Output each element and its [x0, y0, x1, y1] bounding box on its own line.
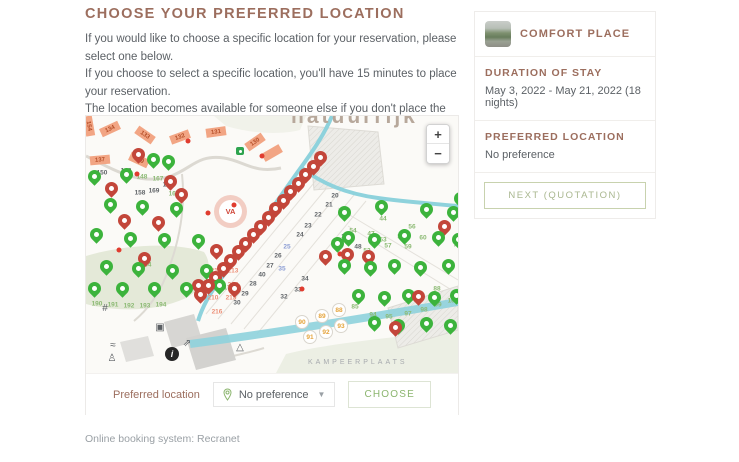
plot-label-32: 32	[280, 294, 287, 301]
green-square-marker	[236, 147, 244, 155]
intro-paragraph-line: If you choose to select a specific locat…	[85, 66, 467, 101]
plot-label-191: 191	[108, 302, 119, 309]
plot-label-98: 98	[420, 307, 427, 314]
circled-plot-90: 90	[295, 315, 309, 329]
preferred-location-value: No preference	[485, 149, 645, 161]
map-card: natuurrijk KAMPEERPLAATS VA + − 13413313…	[85, 115, 459, 415]
preferred-location-dropdown[interactable]: No preference ▼	[213, 382, 336, 407]
circled-plot-89: 89	[315, 309, 329, 323]
red-dot-marker	[206, 211, 211, 216]
plot-label-20: 20	[331, 193, 338, 200]
summary-header: COMFORT PLACE	[475, 12, 655, 56]
plot-label-59: 59	[404, 244, 411, 251]
circled-plot-92: 92	[319, 325, 333, 339]
red-dot-marker	[300, 287, 305, 292]
plot-label-22: 22	[314, 212, 321, 219]
chevron-down-icon: ▼	[318, 390, 326, 399]
pin-icon	[223, 388, 232, 401]
plot-label-56: 56	[408, 224, 415, 231]
plot-label-190: 190	[92, 301, 103, 308]
duration-title: DURATION OF STAY	[485, 67, 645, 79]
plot-label-192: 192	[124, 303, 135, 310]
preferred-location-title: PREFERRED LOCATION	[485, 131, 645, 143]
plot-label-35: 35	[278, 266, 285, 273]
plot-label-34: 34	[301, 276, 308, 283]
plot-label-29: 29	[241, 291, 248, 298]
next-button-row: NEXT (QUOTATION)	[475, 172, 655, 218]
plot-label-60: 60	[419, 235, 426, 242]
plot-label-28: 28	[249, 281, 256, 288]
red-dot-marker	[135, 172, 140, 177]
plot-label-21: 21	[325, 202, 332, 209]
paper-plane-icon: ⇗	[183, 339, 191, 349]
zoom-out-button[interactable]: −	[427, 144, 449, 163]
page-title: CHOOSE YOUR PREFERRED LOCATION	[85, 6, 467, 22]
plot-label-97: 97	[404, 311, 411, 318]
preferred-location-label: Preferred location	[113, 389, 200, 401]
red-dot-marker	[117, 248, 122, 253]
building-137: 137	[90, 155, 111, 166]
high-ropes-icon: #	[102, 304, 108, 314]
plot-label-193: 193	[140, 303, 151, 310]
duration-section: DURATION OF STAY May 3, 2022 - May 21, 2…	[475, 56, 655, 120]
plot-label-48: 48	[354, 244, 361, 251]
plot-label-167: 167	[153, 176, 164, 183]
plot-label-57: 57	[384, 243, 391, 250]
plot-label-24: 24	[296, 232, 303, 239]
map-canvas[interactable]: natuurrijk KAMPEERPLAATS VA + − 13413313…	[86, 116, 458, 373]
comfort-place-thumbnail	[485, 21, 511, 47]
waves-icon: ≈	[110, 341, 116, 351]
choose-button[interactable]: CHOOSE	[348, 381, 431, 408]
plot-label-169: 169	[149, 188, 160, 195]
plot-label-44: 44	[379, 216, 386, 223]
next-quotation-button[interactable]: NEXT (QUOTATION)	[484, 182, 646, 209]
circled-plot-91: 91	[303, 330, 317, 344]
intro-paragraph-line: If you would like to choose a specific l…	[85, 31, 467, 66]
plot-label-194: 194	[156, 302, 167, 309]
plot-label-27: 27	[266, 263, 273, 270]
plot-label-210: 210	[208, 295, 219, 302]
plot-label-40: 40	[258, 272, 265, 279]
plot-label-216: 216	[212, 309, 223, 316]
campsite-logo: VA	[214, 195, 247, 228]
red-dot-marker	[232, 203, 237, 208]
dropdown-value: No preference	[239, 389, 309, 401]
map-control-row: Preferred location No preference ▼ CHOOS…	[86, 373, 458, 415]
accommodation-title: COMFORT PLACE	[520, 28, 630, 40]
duration-value: May 3, 2022 - May 21, 2022 (18 nights)	[485, 85, 645, 109]
map-area-label: KAMPEERPLAATS	[308, 359, 408, 366]
circled-plot-93: 93	[334, 319, 348, 333]
plot-label-26: 26	[274, 253, 281, 260]
circled-plot-88: 88	[332, 303, 346, 317]
plot-label-95: 95	[385, 314, 392, 321]
preferred-location-section: PREFERRED LOCATION No preference	[475, 120, 655, 172]
plot-label-158: 158	[135, 190, 146, 197]
recycle-icon: △	[236, 343, 244, 353]
plot-label-23: 23	[304, 223, 311, 230]
red-dot-marker	[260, 154, 265, 159]
info-icon: i	[165, 347, 179, 361]
reservation-summary-card: COMFORT PLACE DURATION OF STAY May 3, 20…	[474, 11, 656, 219]
zoom-in-button[interactable]: +	[427, 125, 449, 144]
plot-label-25: 25	[283, 244, 290, 251]
red-dot-marker	[186, 139, 191, 144]
campsite-logo-text: VA	[219, 200, 242, 223]
washing-machine-icon: ▣	[155, 323, 164, 333]
map-zoom-control: + −	[426, 124, 450, 164]
booking-system-note: Online booking system: Recranet	[85, 433, 240, 445]
person-icon: ♙	[108, 354, 117, 364]
